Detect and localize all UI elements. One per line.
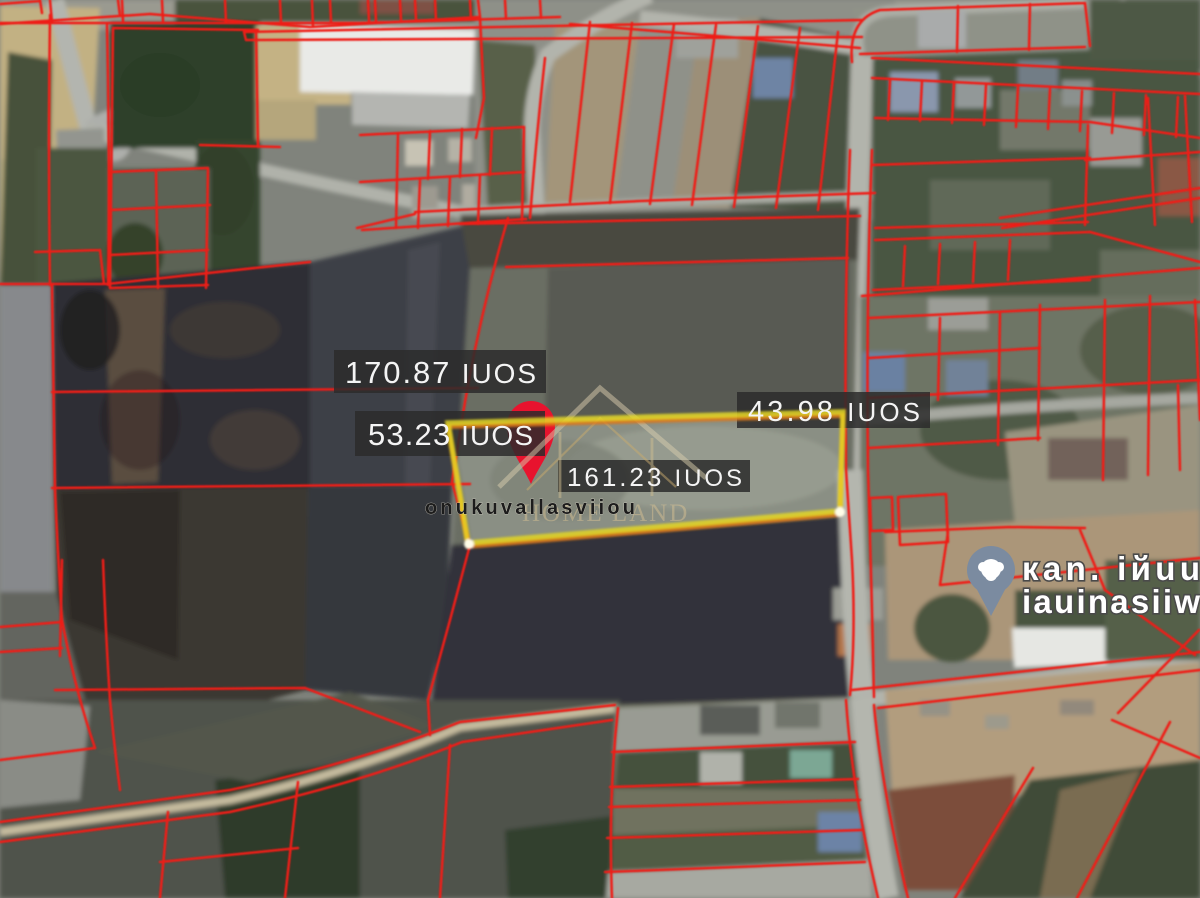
svg-text:onukuvallasviiou: onukuvallasviiou: [425, 497, 636, 519]
svg-text:53.23 IUOS: 53.23 IUOS: [368, 417, 533, 452]
svg-text:170.87 IUOS: 170.87 IUOS: [345, 355, 536, 390]
svg-text:кan. iйuu: кan. iйuu: [1022, 550, 1200, 587]
svg-text:161.23 IUOS: 161.23 IUOS: [567, 462, 742, 492]
